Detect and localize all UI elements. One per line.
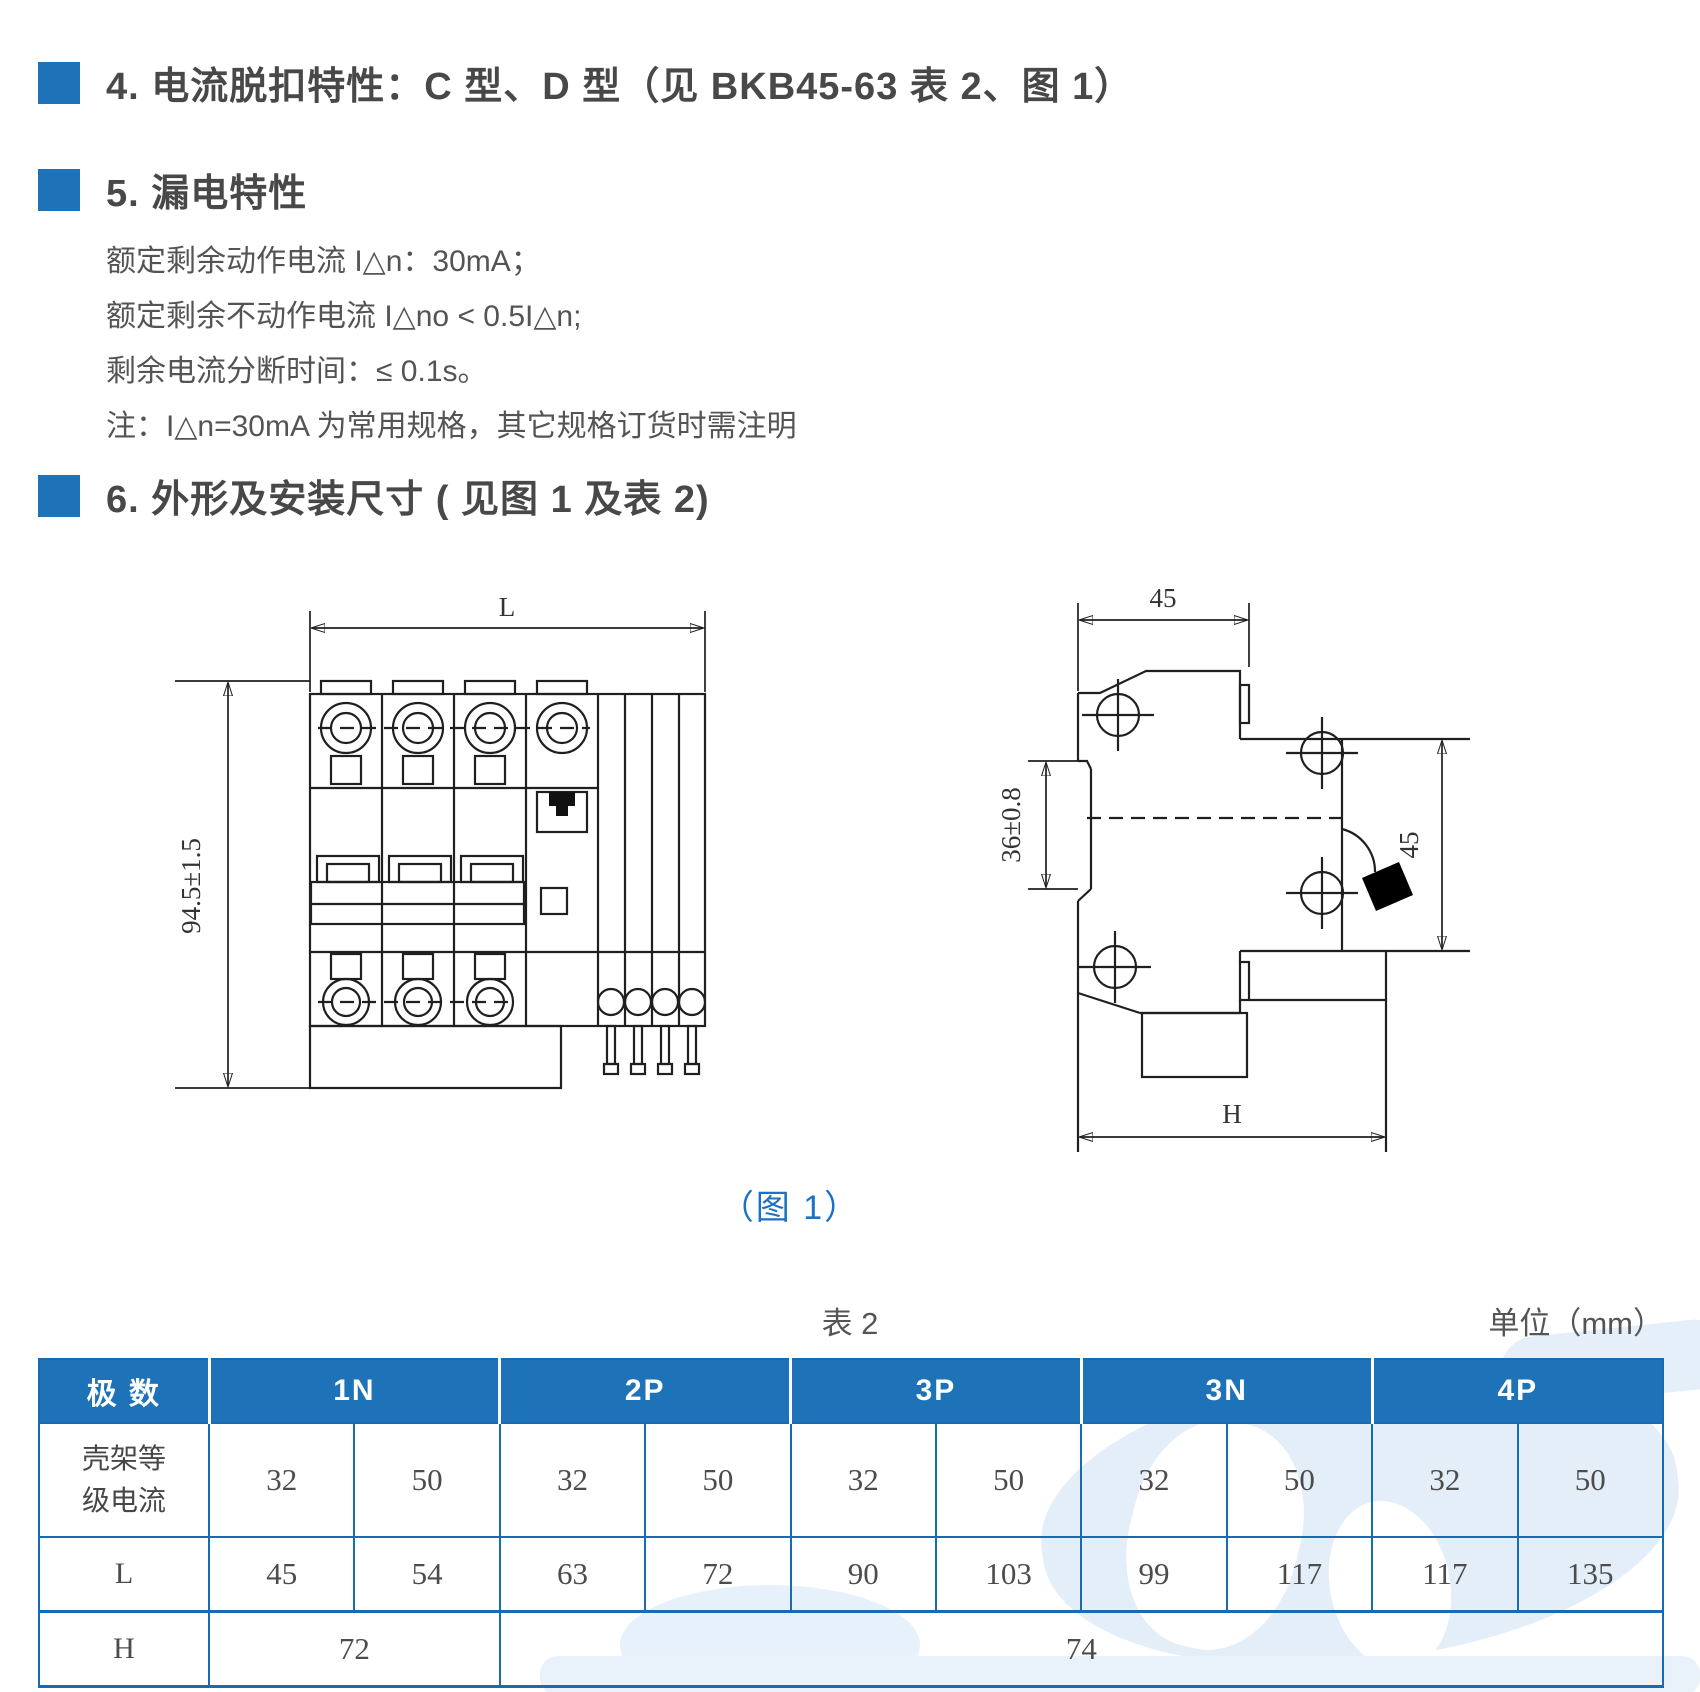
leakage-spec-line: 额定剩余不动作电流 I△no < 0.5I△n; [106, 291, 581, 335]
cell-value: 32 [1372, 1423, 1517, 1537]
cell-value: 50 [1518, 1423, 1663, 1537]
cell-value: 99 [1081, 1537, 1226, 1612]
row-label: 壳架等级电流 [39, 1423, 209, 1537]
header-group-3P: 3P [791, 1359, 1082, 1423]
cell-value: 90 [791, 1537, 936, 1612]
square-bullet-icon [38, 169, 80, 211]
cell-value: 72 [645, 1537, 790, 1612]
cell-value: 50 [936, 1423, 1081, 1537]
header-group-3N: 3N [1081, 1359, 1372, 1423]
header-poles: 极 数 [39, 1359, 209, 1423]
cell-value: 117 [1227, 1537, 1372, 1612]
mounting-screw-marks [1079, 679, 1358, 1003]
section-title: 5. 漏电特性 [106, 162, 307, 217]
square-bullet-icon [38, 62, 80, 104]
table-row-H: H 72 74 [39, 1612, 1663, 1687]
width-dimension-L: L [310, 592, 705, 692]
bottom-depth-dimension: H [1080, 1099, 1384, 1137]
cell-value: 45 [209, 1537, 354, 1612]
cell-value: 72 [209, 1612, 500, 1687]
header-group-4P: 4P [1372, 1359, 1663, 1423]
left-dimension: 36±0.8 [996, 761, 1078, 889]
table-unit-label: 单位（mm） [1488, 1298, 1664, 1343]
dim-label-height: 94.5±1.5 [176, 838, 206, 934]
cell-value: 135 [1518, 1537, 1663, 1612]
square-bullet-icon [38, 475, 80, 517]
cell-value: 50 [1227, 1423, 1372, 1537]
test-connector [537, 792, 587, 832]
front-view-drawing: L 94.5±1.5 [160, 556, 720, 1116]
dim-label-L: L [499, 592, 516, 622]
cell-value: 32 [500, 1423, 645, 1537]
side-view-drawing: 45 36±0.8 45 H [950, 545, 1530, 1165]
height-dimension: 94.5±1.5 [175, 681, 310, 1088]
dim-label-36: 36±0.8 [996, 787, 1026, 863]
row-label: H [39, 1612, 209, 1687]
cell-value: 50 [645, 1423, 790, 1537]
right-dimension: 45 [1394, 741, 1442, 949]
table-title: 表 2 [0, 1298, 1700, 1343]
table-header-row: 极 数 1N 2P 3P 3N 4P [39, 1359, 1663, 1423]
top-width-dimension: 45 [1078, 583, 1249, 691]
table-row-L: L 45 54 63 72 90 103 99 117 117 135 [39, 1537, 1663, 1612]
leakage-spec-line: 额定剩余动作电流 I△n：30mA； [106, 236, 541, 280]
section-heading-4: 4. 电流脱扣特性：C 型、D 型（见 BKB45-63 表 2、图 1） [38, 55, 1133, 110]
handle-assembly [311, 856, 567, 924]
breaker-side-outline [1078, 671, 1470, 1152]
header-group-1N: 1N [209, 1359, 500, 1423]
header-group-2P: 2P [500, 1359, 791, 1423]
figure-caption: （图 1） [0, 1180, 1580, 1229]
cell-value: 63 [500, 1537, 645, 1612]
bottom-pins [604, 1026, 699, 1074]
leakage-spec-line: 剩余电流分断时间：≤ 0.1s。 [106, 346, 488, 390]
dim-label-H: H [1222, 1099, 1242, 1129]
bottom-terminal-screws [318, 954, 705, 1025]
cell-value: 32 [1081, 1423, 1226, 1537]
cell-value: 54 [354, 1537, 499, 1612]
row-label: L [39, 1537, 209, 1612]
dimension-table: 极 数 1N 2P 3P 3N 4P 壳架等级电流 32 50 32 50 32… [38, 1358, 1664, 1688]
section-title: 4. 电流脱扣特性：C 型、D 型（见 BKB45-63 表 2、图 1） [106, 55, 1133, 110]
cell-value: 117 [1372, 1537, 1517, 1612]
cell-value: 32 [209, 1423, 354, 1537]
table-row-frame-current: 壳架等级电流 32 50 32 50 32 50 32 50 32 50 [39, 1423, 1663, 1537]
leakage-spec-line: 注：I△n=30mA 为常用规格，其它规格订货时需注明 [106, 401, 797, 445]
section-title: 6. 外形及安装尺寸 ( 见图 1 及表 2) [106, 468, 710, 523]
breaker-front-outline [310, 681, 705, 1088]
cell-value: 74 [500, 1612, 1663, 1687]
dim-label-45-top: 45 [1150, 583, 1177, 613]
cell-value: 50 [354, 1423, 499, 1537]
section-heading-5: 5. 漏电特性 [38, 162, 307, 217]
cell-value: 103 [936, 1537, 1081, 1612]
datasheet-page: 4. 电流脱扣特性：C 型、D 型（见 BKB45-63 表 2、图 1） 5.… [0, 0, 1700, 1692]
section-heading-6: 6. 外形及安装尺寸 ( 见图 1 及表 2) [38, 468, 710, 523]
cell-value: 32 [791, 1423, 936, 1537]
dim-label-45-right: 45 [1394, 832, 1424, 859]
